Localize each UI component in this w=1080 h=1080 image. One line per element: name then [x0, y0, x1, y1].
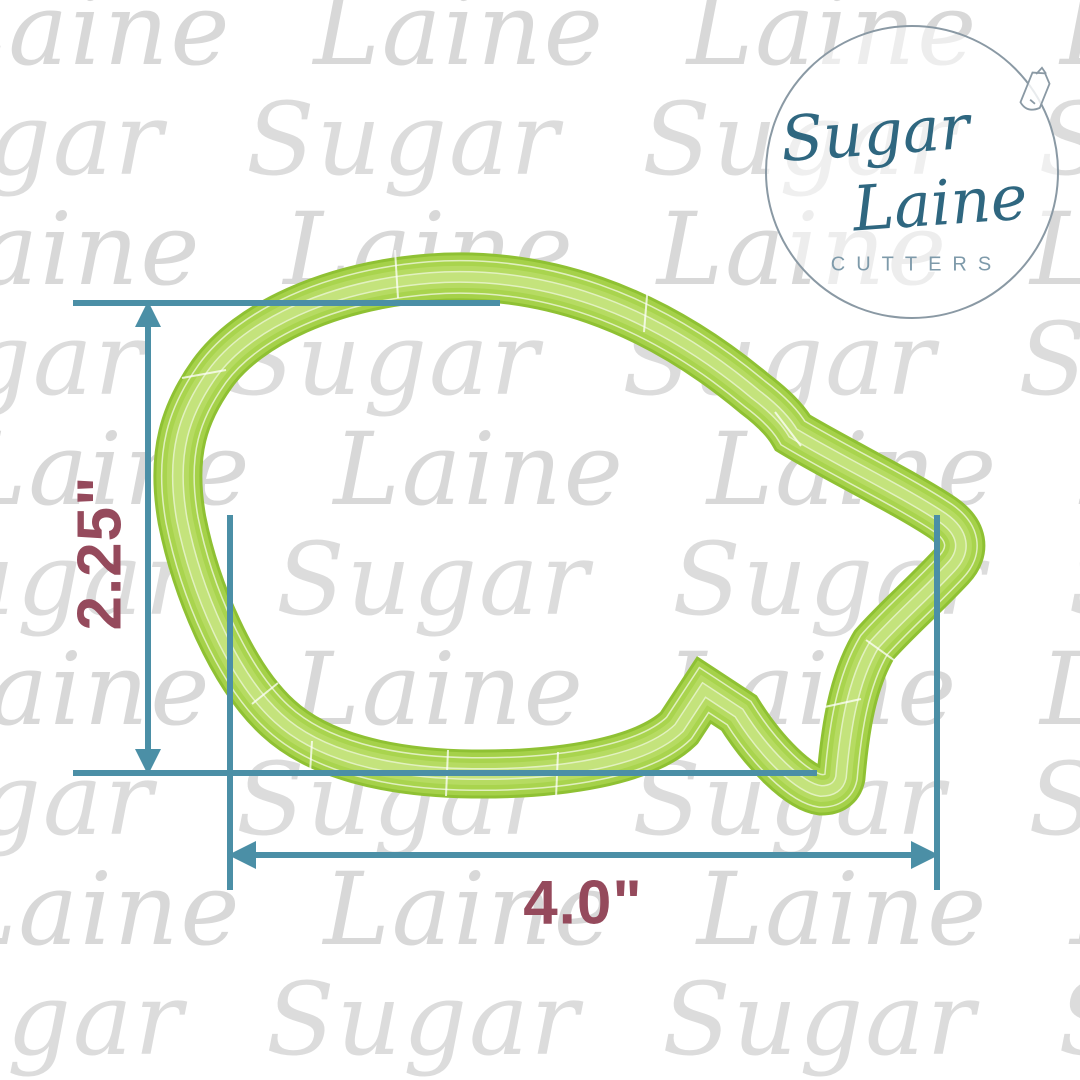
width-dimension — [228, 515, 939, 890]
width-dimension-label: 4.0" — [523, 868, 643, 939]
height-dimension — [73, 301, 817, 775]
tag-icon — [1005, 63, 1065, 133]
brand-logo: Sugar Laine CUTTERS — [765, 25, 1059, 319]
product-image-canvas: Laine Laine Laine Laine LaineSugar Sugar… — [0, 0, 1080, 1080]
logo-tagline: CUTTERS — [820, 254, 1002, 277]
logo-brand-word-laine: Laine — [850, 160, 1029, 245]
logo-brand-word-sugar: Sugar — [778, 90, 971, 176]
height-dimension-label: 2.25" — [65, 475, 136, 630]
